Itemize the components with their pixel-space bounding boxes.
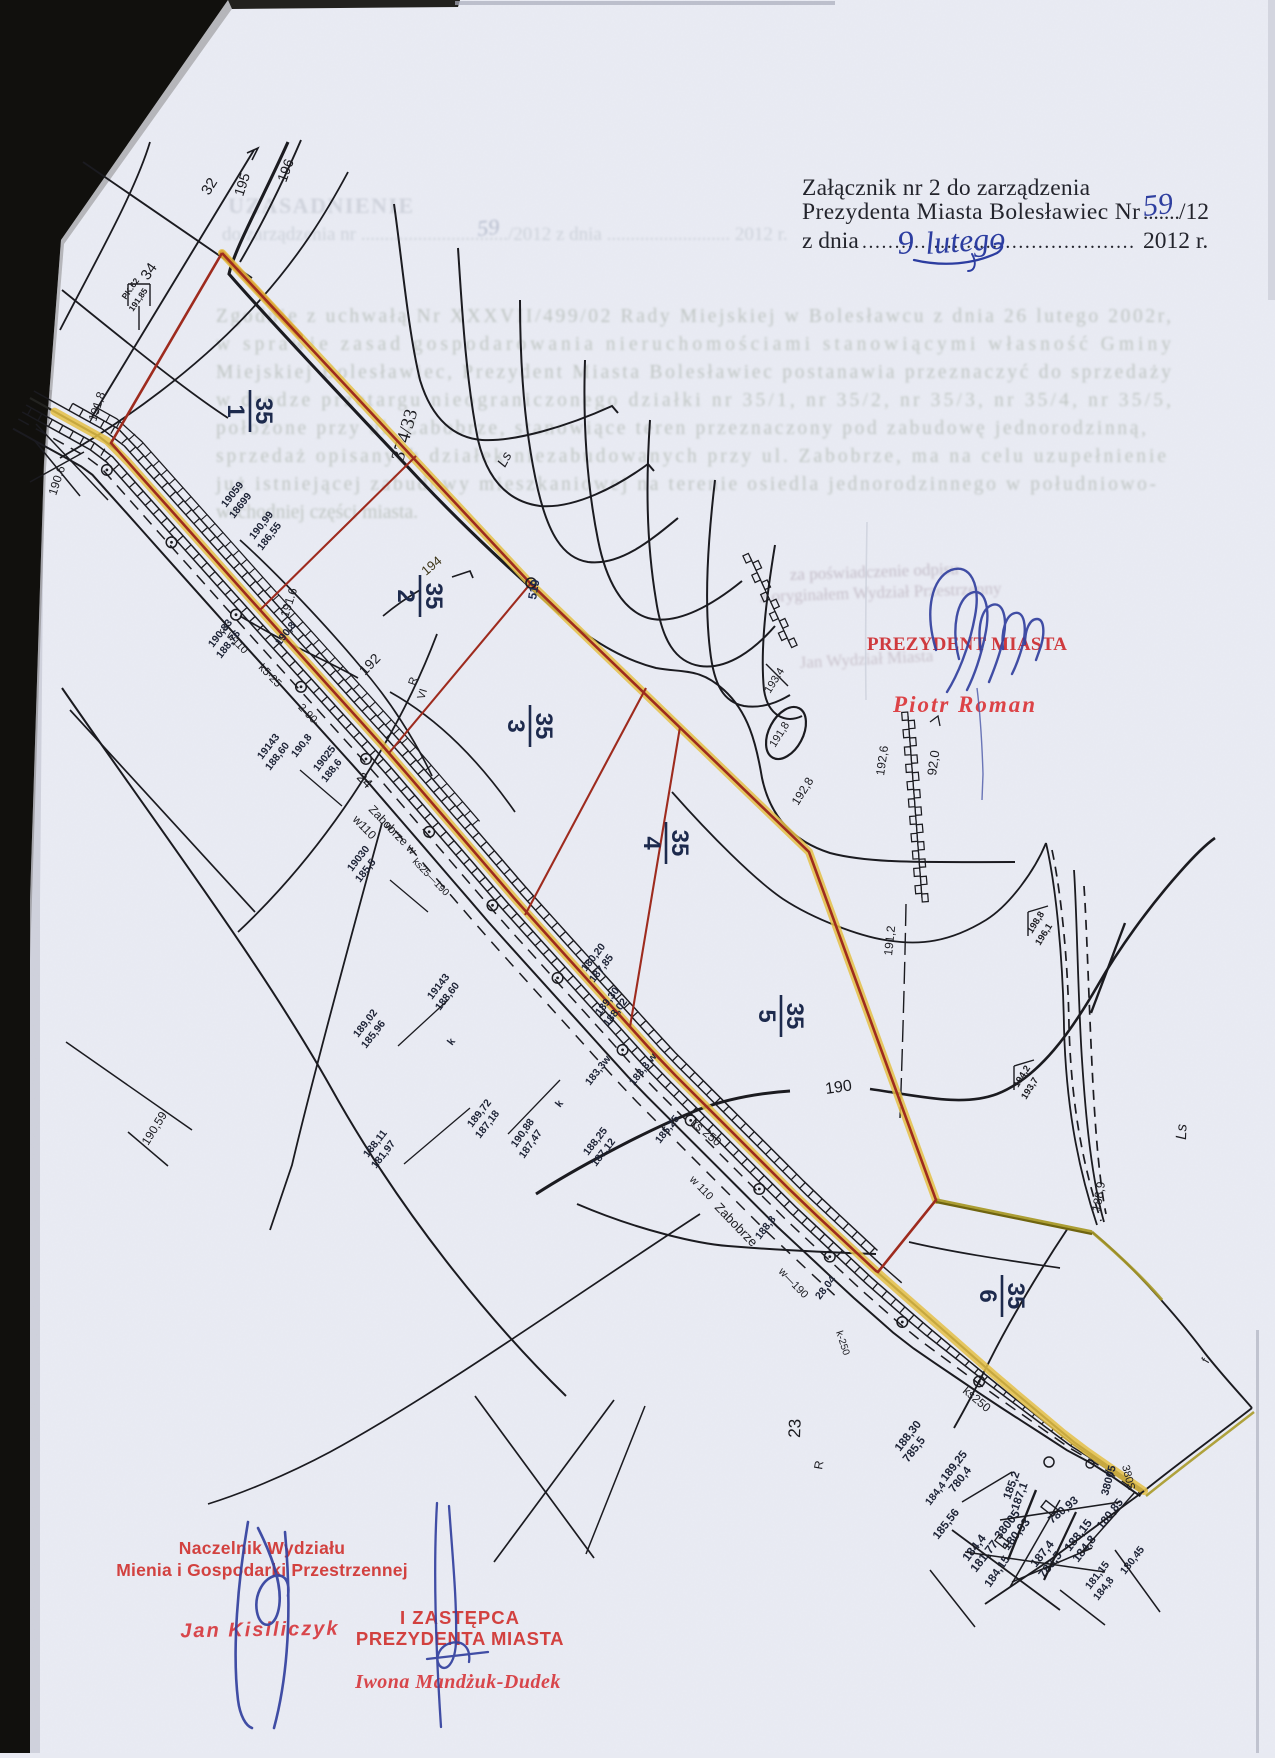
svg-text:z dnia: z dnia <box>802 228 859 254</box>
svg-text:3: 3 <box>502 719 529 732</box>
svg-text:35: 35 <box>781 1003 808 1030</box>
svg-text:1: 1 <box>222 404 249 417</box>
svg-text:35: 35 <box>530 713 557 740</box>
svg-text:Piotr Roman: Piotr Roman <box>892 692 1035 717</box>
svg-text:59: 59 <box>1141 187 1174 223</box>
svg-text:6: 6 <box>974 1289 1001 1302</box>
svg-text:Naczelnik Wydziału: Naczelnik Wydziału <box>179 1538 346 1558</box>
svg-text:Załącznik nr 2 do zarządzenia: Załącznik nr 2 do zarządzenia <box>802 175 1091 201</box>
svg-text:9: 9 <box>896 225 915 262</box>
svg-text:4: 4 <box>638 836 665 850</box>
svg-text:I ZASTĘPCA: I ZASTĘPCA <box>400 1607 520 1628</box>
svg-text:w sprawie zasad gospodarowania: w sprawie zasad gospodarowania nieruchom… <box>216 334 1171 355</box>
svg-text:Ls: Ls <box>1173 1123 1191 1140</box>
svg-text:położone przy ul. Zabobrze, st: położone przy ul. Zabobrze, stanowiące t… <box>216 418 1146 439</box>
svg-text:23: 23 <box>785 1419 805 1439</box>
svg-text:UZASADNIENIE: UZASADNIENIE <box>228 193 415 218</box>
svg-text:5: 5 <box>753 1009 780 1022</box>
svg-text:35: 35 <box>250 398 277 425</box>
svg-text:59: 59 <box>476 214 500 241</box>
svg-text:/12: /12 <box>1179 199 1209 225</box>
svg-text:Mienia i Gospodarki Przestrzen: Mienia i Gospodarki Przestrzennej <box>116 1560 408 1580</box>
svg-text:35: 35 <box>666 830 693 857</box>
svg-text:35: 35 <box>420 583 447 610</box>
svg-text:Miejskiej Bolesławiec, Prezyde: Miejskiej Bolesławiec, Prezydent Miasta … <box>216 362 1171 383</box>
svg-text:2012 r.: 2012 r. <box>1143 228 1208 254</box>
svg-text:35: 35 <box>1002 1283 1029 1310</box>
svg-text:PREZYDENTA MIASTA: PREZYDENTA MIASTA <box>356 1628 564 1649</box>
svg-text:2: 2 <box>392 589 419 602</box>
svg-text:Iwona Mandżuk-Dudek: Iwona Mandżuk-Dudek <box>354 1671 561 1693</box>
